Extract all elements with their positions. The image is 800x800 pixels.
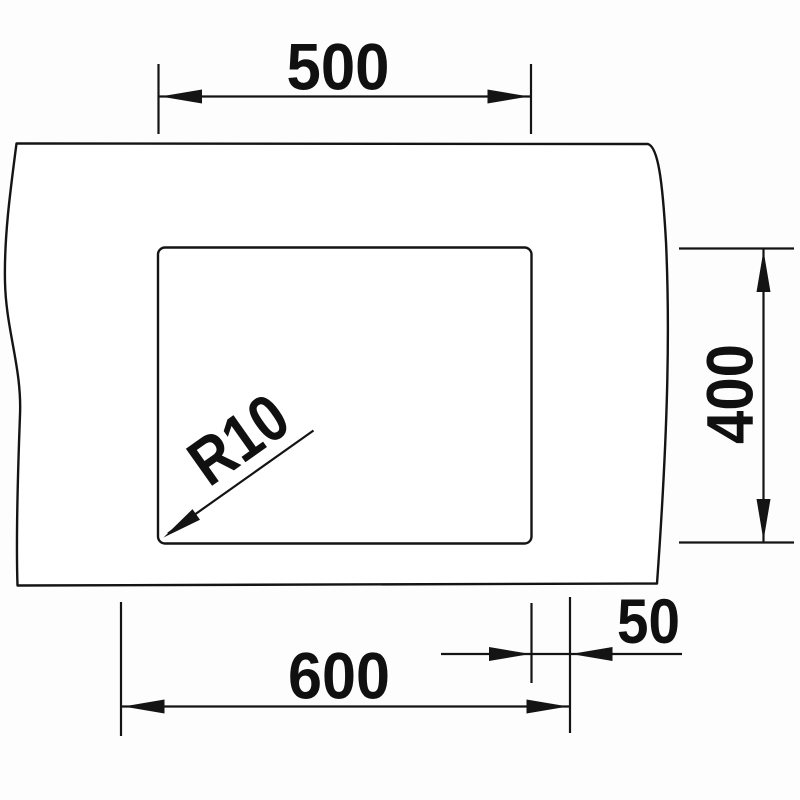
svg-text:50: 50 (617, 587, 680, 657)
svg-text:400: 400 (693, 344, 767, 444)
svg-text:600: 600 (288, 639, 390, 713)
svg-text:500: 500 (287, 30, 390, 104)
